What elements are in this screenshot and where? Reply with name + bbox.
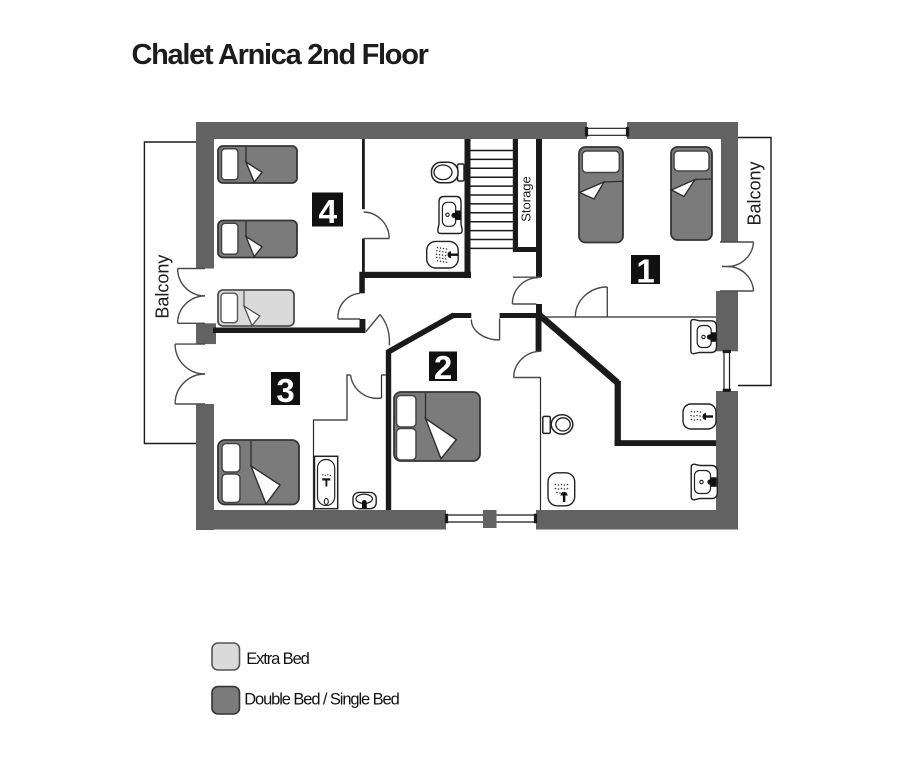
svg-text:1: 1 <box>636 253 654 290</box>
svg-text:Chalet Arnica 2nd Floor: Chalet Arnica 2nd Floor <box>132 39 429 71</box>
svg-text:3: 3 <box>276 372 294 409</box>
svg-text:Balcony: Balcony <box>745 161 765 225</box>
svg-text:2: 2 <box>434 349 452 386</box>
svg-text:Extra Bed: Extra Bed <box>246 650 309 668</box>
svg-text:Double Bed / Single Bed: Double Bed / Single Bed <box>244 691 399 709</box>
svg-text:Storage: Storage <box>519 176 534 222</box>
svg-text:4: 4 <box>318 194 337 231</box>
svg-text:Balcony: Balcony <box>153 255 173 319</box>
